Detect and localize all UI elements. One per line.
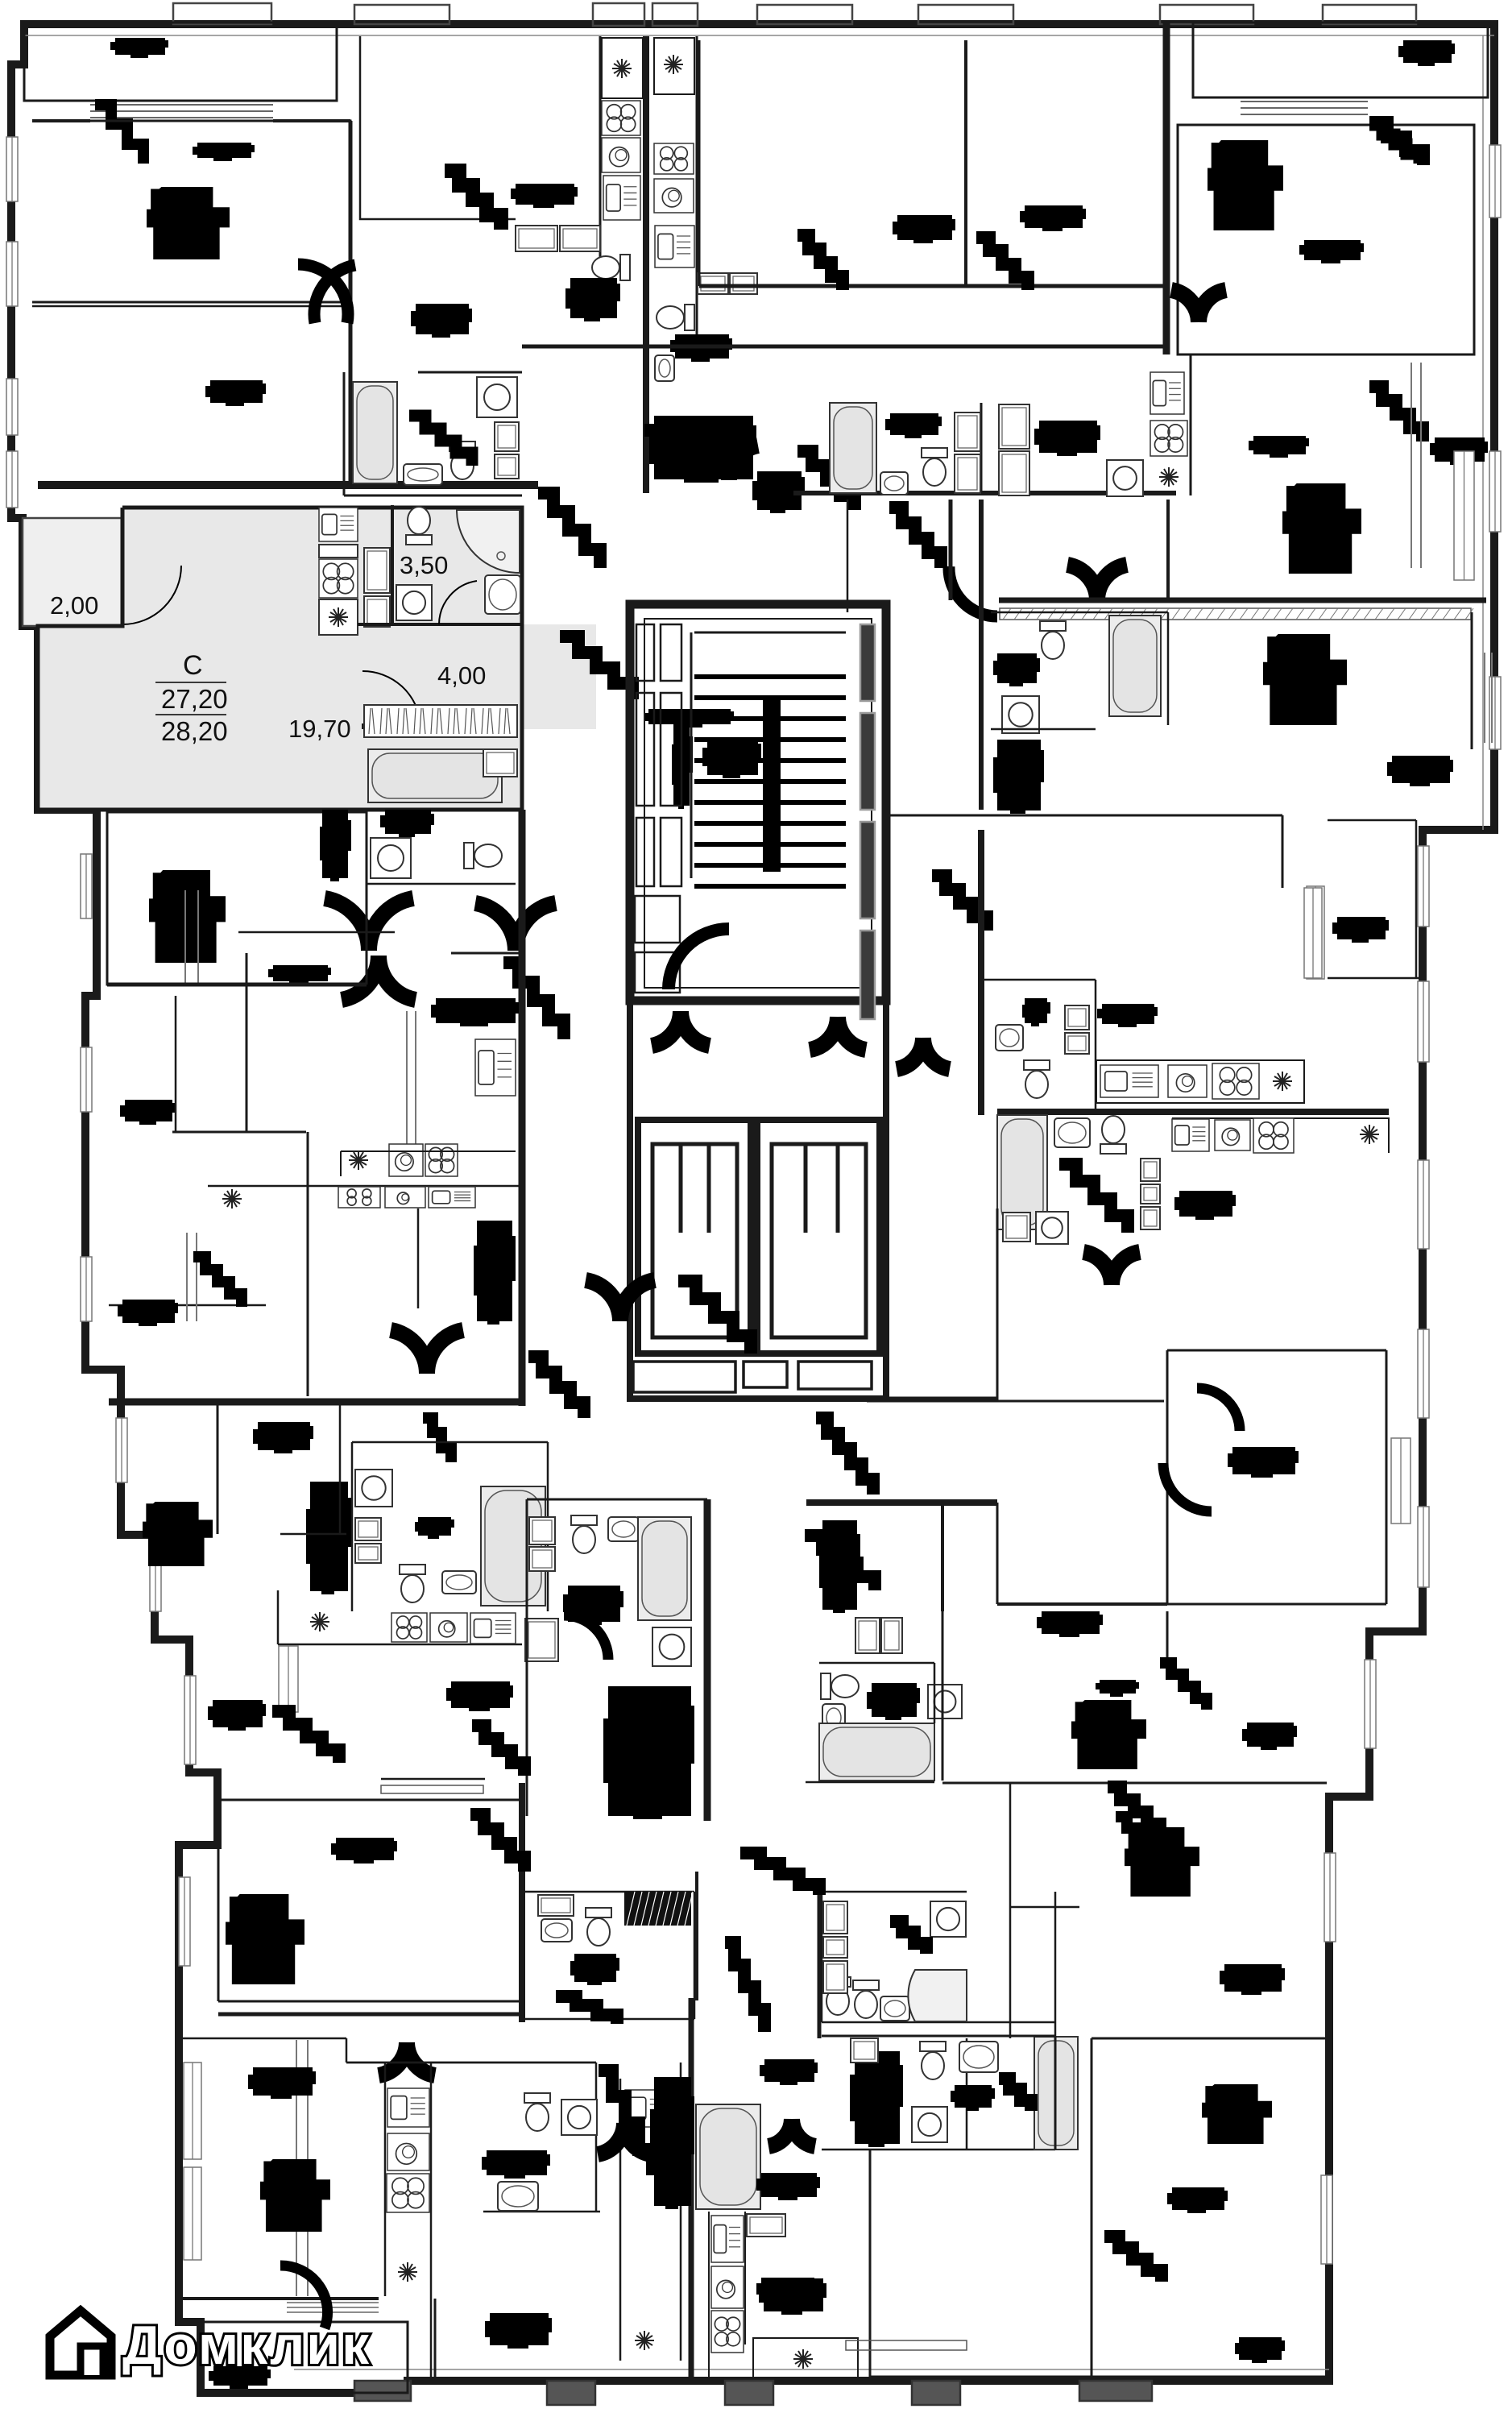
svg-text:Домклик: Домклик — [122, 2315, 371, 2376]
svg-text:3,50: 3,50 — [400, 551, 448, 579]
svg-text:2,00: 2,00 — [50, 591, 98, 620]
svg-text:С: С — [183, 650, 203, 681]
svg-text:19,70: 19,70 — [288, 715, 351, 743]
svg-text:27,20: 27,20 — [161, 684, 228, 714]
svg-text:4,00: 4,00 — [437, 661, 486, 690]
svg-text:28,20: 28,20 — [161, 716, 228, 746]
